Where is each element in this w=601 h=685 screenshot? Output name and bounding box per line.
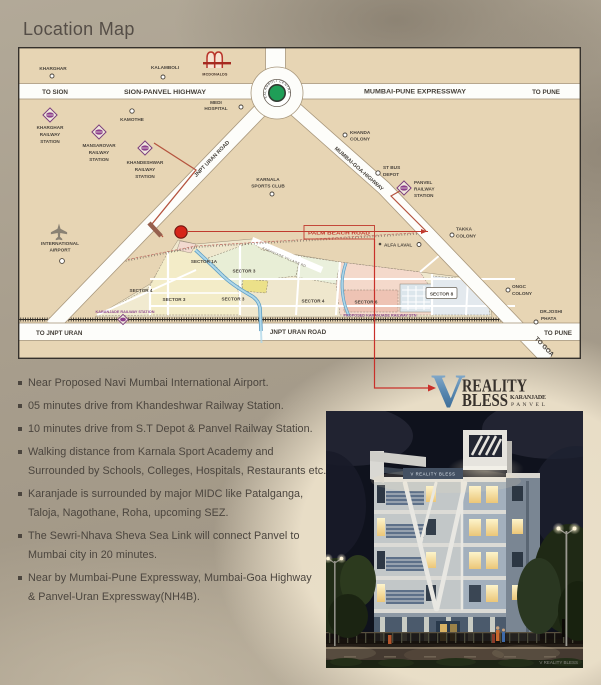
svg-text:V REALITY BLESS: V REALITY BLESS [411, 472, 456, 477]
svg-text:KARANJADE: KARANJADE [510, 395, 546, 401]
svg-text:V REALITY BLESS: V REALITY BLESS [539, 660, 578, 665]
svg-text:P A N V E L: P A N V E L [511, 402, 546, 408]
svg-text:BLESS: BLESS [462, 390, 508, 410]
